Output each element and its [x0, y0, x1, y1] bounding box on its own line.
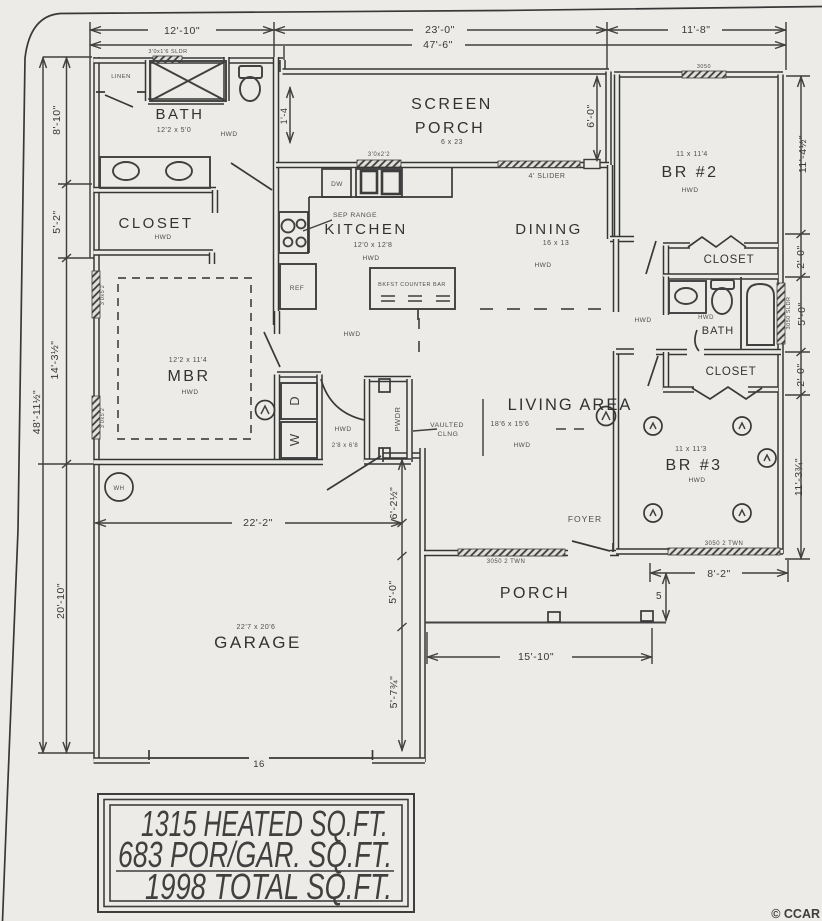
svg-text:© CCAR: © CCAR — [771, 907, 820, 921]
